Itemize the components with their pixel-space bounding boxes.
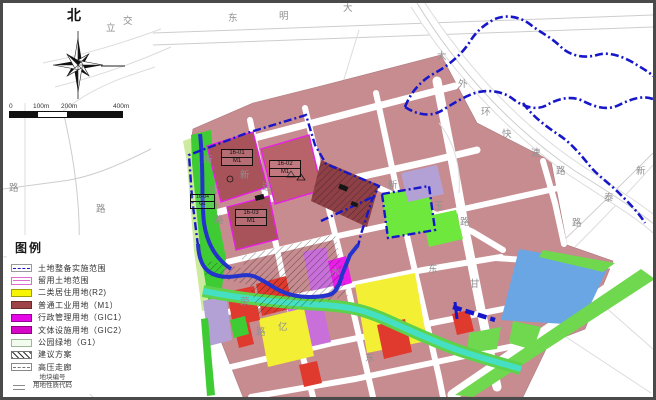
parcel-label-16-03: 16-03 M1: [235, 209, 267, 226]
scale-bar: 0100m200m400m: [9, 103, 129, 118]
hatch-swatch: [11, 351, 32, 359]
road-name-char: 泰: [604, 192, 614, 204]
legend-item: 留用土地范围: [11, 274, 163, 286]
parcel-use: M1: [236, 218, 266, 225]
legend-item: 二类居住用地(R2): [11, 287, 163, 299]
fill-swatch: [11, 314, 32, 322]
road-name-char: 达: [262, 181, 272, 193]
road-name-char: 东: [365, 352, 375, 364]
legend-item-label: 二类居住用地(R2): [38, 287, 107, 298]
road-name-char: 路: [256, 326, 266, 338]
legend-item: 普通工业用地（M1）: [11, 299, 163, 311]
road-name-char: 立: [106, 22, 116, 34]
scale-bar-segments: [9, 111, 123, 118]
mini-code-icon: [11, 382, 27, 391]
scale-tick: 400m: [113, 103, 129, 110]
scale-segment: [94, 112, 122, 117]
scale-tick: 100m: [33, 103, 49, 110]
parcel-code: 16-03: [236, 210, 266, 218]
fill-swatch: [11, 301, 32, 309]
compass-rose-icon: [53, 31, 125, 99]
road-name-char: 亿: [278, 321, 288, 333]
scale-tick: 0: [9, 103, 13, 110]
road-name-char: 路: [9, 182, 19, 194]
planning-map: 东明大大外环快速路立交新拓路新达新玉路新泰路路路荣路亿水东甘东 北 0100m2…: [0, 0, 656, 400]
road-name-char: 速: [531, 148, 541, 159]
retained-land-swatch: [11, 277, 32, 285]
parcel-use: M1: [222, 158, 252, 165]
scale-segment: [66, 112, 95, 117]
road-name-char: 快: [502, 128, 512, 140]
legend-title: 图例: [15, 239, 163, 256]
legend-item: 土地整备实施范围: [11, 262, 163, 274]
parcel-code: 16-02: [270, 161, 300, 169]
road-name-char: 东: [228, 12, 238, 24]
road-name-char: 路: [572, 217, 582, 229]
road-name-char: 新: [388, 179, 398, 191]
legend-item-label: 文体设施用地（GIC2）: [38, 325, 127, 336]
road-name-char: 路: [556, 165, 566, 177]
scale-tick: 200m: [61, 103, 77, 110]
scale-segment: [10, 112, 38, 117]
road-name-char: 水: [331, 266, 341, 278]
parcel-code: 16-01: [222, 150, 252, 158]
road-name-char: 路: [460, 216, 470, 228]
parcel-use: G1: [191, 202, 214, 208]
road-name-char: 路: [96, 203, 106, 215]
scale-segment: [38, 112, 66, 117]
legend-item-label: 建议方案: [38, 349, 72, 360]
road-name-char: 明: [279, 11, 289, 22]
parcel-label-16-02: 16-02 M1: [269, 160, 301, 177]
road-name-char: 新: [203, 154, 213, 166]
legend-item: 高压走廊: [11, 361, 163, 373]
scale-ticks: 0100m200m400m: [9, 103, 129, 111]
outline-fill-swatch: [11, 339, 32, 347]
road-name-char: 新: [636, 165, 646, 177]
road-name-char: 荣: [240, 296, 250, 308]
legend-item-label: 行政管理用地（GIC1）: [38, 312, 127, 323]
parcel-label-16-04: 16-04 G1: [190, 194, 215, 209]
legend-item: 行政管理用地（GIC1）: [11, 312, 163, 324]
parcel-code-symbol: [11, 378, 27, 386]
road-name-char: 环: [481, 107, 491, 118]
legend-item-label: 普通工业用地（M1）: [38, 300, 118, 311]
road-name-char: 路: [214, 214, 224, 226]
road-name-char: 甘: [470, 278, 480, 290]
road-name-char: 玉: [434, 201, 444, 212]
road-name-char: 大: [437, 50, 447, 62]
legend-item-label: 土地整备实施范围: [38, 263, 106, 274]
road-name-char: 外: [458, 78, 468, 90]
north-label: 北: [67, 5, 82, 25]
legend-panel: 图例 土地整备实施范围留用土地范围二类居住用地(R2)普通工业用地（M1）行政管…: [7, 235, 163, 394]
legend-item-label: 高压走廊: [38, 362, 72, 373]
legend-item: 公园绿地（G1）: [11, 336, 163, 348]
legend-item: 建议方案: [11, 349, 163, 361]
road-name-char: 新: [240, 169, 250, 181]
code-fraction-label: 地块编号用地性质代码: [33, 374, 72, 390]
parcel-use: M1: [270, 169, 300, 176]
parcel-label-16-01: 16-01 M1: [221, 149, 253, 166]
legend-item: 地块编号用地性质代码: [11, 374, 163, 390]
road-name-char: 东: [428, 263, 438, 275]
road-name-char: 交: [123, 15, 133, 27]
boundary-line-swatch: [11, 264, 32, 272]
corridor-swatch: [11, 363, 32, 371]
fill-swatch: [11, 326, 32, 334]
legend-item-label: 公园绿地（G1）: [38, 337, 101, 348]
fill-swatch: [11, 289, 32, 297]
road-name-char: 大: [343, 3, 353, 14]
legend-item: 文体设施用地（GIC2）: [11, 324, 163, 336]
legend-rows: 土地整备实施范围留用土地范围二类居住用地(R2)普通工业用地（M1）行政管理用地…: [11, 262, 163, 390]
legend-item-label: 留用土地范围: [38, 275, 89, 286]
